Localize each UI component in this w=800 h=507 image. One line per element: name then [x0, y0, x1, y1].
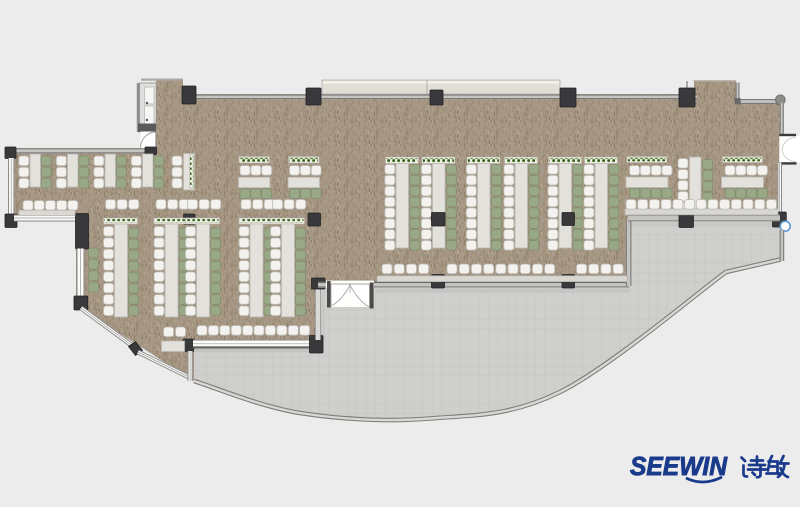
svg-text:SEEWIN: SEEWIN	[630, 453, 728, 481]
